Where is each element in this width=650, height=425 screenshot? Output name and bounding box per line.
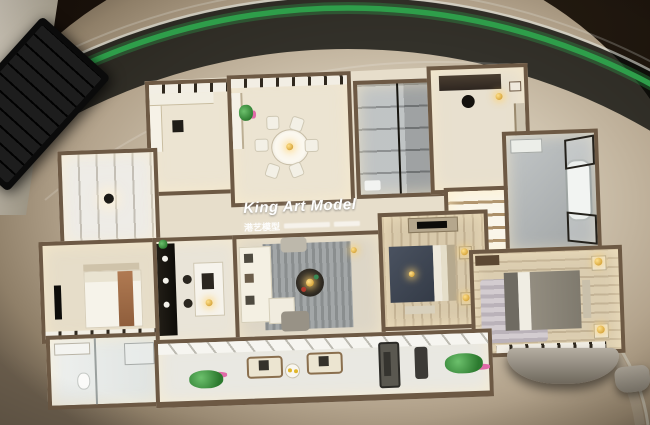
bench: [582, 280, 591, 318]
cushion: [319, 356, 329, 366]
sink: [364, 180, 380, 191]
floor-lamp: [351, 247, 357, 253]
tv: [417, 221, 447, 229]
planter: [189, 370, 224, 389]
watermark-title: King Art Model: [243, 195, 413, 217]
bed: [504, 270, 582, 331]
stool: [183, 299, 192, 308]
kitchen-counter: [156, 243, 177, 336]
watermark: King Art Model 港艺模型: [243, 195, 414, 233]
toilet: [77, 372, 91, 389]
side-table: [285, 363, 301, 379]
chair: [264, 162, 281, 179]
plant-small: [158, 240, 167, 249]
table-centerpiece: [286, 143, 293, 150]
tray: [202, 273, 215, 289]
kettle: [205, 299, 212, 306]
shower-enclosure: [124, 342, 155, 365]
armchair: [280, 237, 307, 253]
gold-decor: [306, 279, 314, 287]
drinks: [288, 368, 292, 372]
planter: [445, 353, 484, 374]
vanity: [510, 138, 542, 153]
headboard: [447, 245, 457, 301]
bed-emblem: [409, 271, 415, 277]
bed-runner: [117, 271, 134, 326]
watermark-small-text-blur: [284, 221, 330, 228]
desk: [439, 74, 501, 91]
ceiling-light: [104, 193, 114, 203]
partition: [94, 338, 98, 404]
lounge-chair: [306, 352, 343, 375]
potted-plant: [239, 105, 254, 121]
room-balcony: [154, 328, 494, 408]
room-bath-right: [502, 129, 602, 256]
appliance: [172, 120, 183, 132]
bench: [405, 305, 435, 314]
sofa-pillows: [244, 254, 253, 263]
chair: [304, 139, 318, 152]
apartment-scale-model: King Art Model 港艺模型: [26, 42, 630, 412]
dresser: [475, 255, 499, 266]
cushion: [259, 360, 269, 370]
stool: [183, 275, 192, 284]
room-living: [232, 230, 386, 345]
treadmill: [378, 342, 401, 389]
chair: [288, 161, 305, 179]
tv-console: [408, 216, 458, 233]
chair: [254, 139, 268, 152]
vanity: [54, 342, 90, 355]
watermark-tagline-script: 港艺模型: [244, 219, 280, 233]
glass-panel: [567, 212, 598, 245]
desk-chair: [461, 95, 474, 108]
watermark-small-text-blur: [334, 220, 360, 226]
room-bath-left: [46, 332, 165, 410]
kitchen-island: [193, 262, 225, 317]
room-dining: [227, 71, 356, 207]
lounge-chair: [246, 356, 283, 379]
counter-top: [149, 92, 213, 106]
desk-lamp: [495, 93, 502, 100]
duvet: [530, 270, 582, 330]
chair: [266, 116, 279, 130]
bed: [389, 245, 457, 303]
room-bedroom-right: [469, 245, 626, 358]
bed: [83, 270, 143, 329]
curved-canopy: [507, 348, 619, 384]
wall-frame: [509, 81, 521, 91]
cabinet: [231, 93, 244, 149]
green-decor: [314, 274, 319, 279]
glass-panel: [564, 135, 595, 170]
room-kitchen: [152, 235, 244, 348]
photo-scene: King Art Model 港艺模型: [0, 0, 650, 425]
window-band: [231, 75, 347, 88]
dishes: [162, 256, 168, 262]
pedestal-stool: [614, 364, 650, 394]
armchair: [281, 311, 310, 332]
exercise-bike: [414, 347, 428, 379]
duvet: [389, 245, 435, 303]
red-decor: [301, 287, 306, 292]
glass-partition: [396, 83, 402, 193]
room-bedroom-left: [38, 238, 169, 344]
treadmill-belt: [383, 352, 391, 376]
room-closet-left: [57, 148, 160, 249]
tv: [54, 285, 62, 319]
